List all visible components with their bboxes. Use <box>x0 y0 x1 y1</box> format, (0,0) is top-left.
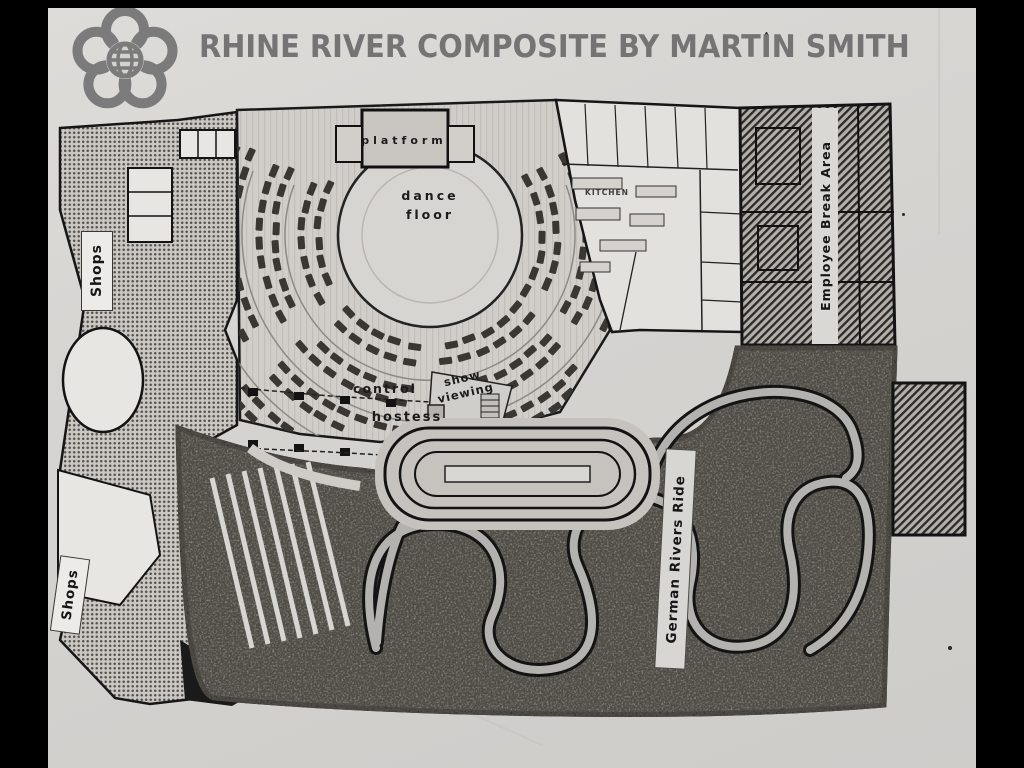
annex-hatched-box <box>893 383 965 535</box>
shops-upper-label: Shops <box>82 232 112 310</box>
hostess-label: hostess <box>360 410 454 425</box>
dust-speck <box>948 646 952 650</box>
control-label: control <box>342 381 428 396</box>
shops-corridor <box>180 130 235 158</box>
shops-rooms <box>128 168 172 242</box>
ride-station <box>375 418 660 530</box>
letterbox-bar-top <box>0 0 1024 8</box>
shops-room-round <box>63 328 143 432</box>
dance-floor <box>338 143 522 327</box>
slide-title: RHINE RIVER COMPOSITE BY MARTIN SMITH <box>199 29 910 65</box>
letterbox-bar-right <box>976 0 1024 768</box>
letterbox-bar-left <box>0 0 48 768</box>
platform-label: platform <box>352 134 456 147</box>
employee-break-area-label: Employee Break Area <box>812 108 838 344</box>
dance-floor-label: dance floor <box>358 186 502 225</box>
epcot-center-logo-icon <box>66 4 184 118</box>
kitchen-label: KITCHEN <box>576 188 638 197</box>
dust-speck <box>902 213 905 216</box>
station-platform <box>445 466 590 482</box>
slide: RHINE RIVER COMPOSITE BY MARTIN SMITH pl… <box>0 0 1024 768</box>
